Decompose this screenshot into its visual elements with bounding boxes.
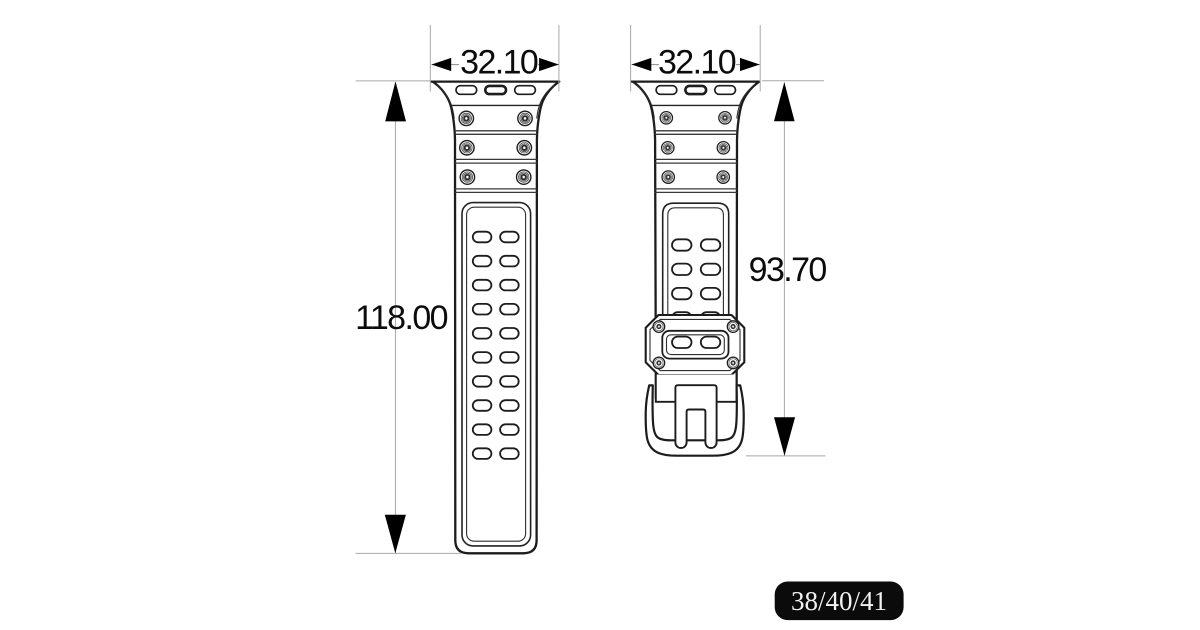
svg-text:32.10: 32.10 [460, 43, 538, 81]
svg-text:118.00: 118.00 [355, 299, 448, 337]
svg-text:93.70: 93.70 [749, 251, 827, 289]
svg-text:32.10: 32.10 [658, 43, 736, 81]
svg-text:38/40/41: 38/40/41 [791, 586, 887, 616]
